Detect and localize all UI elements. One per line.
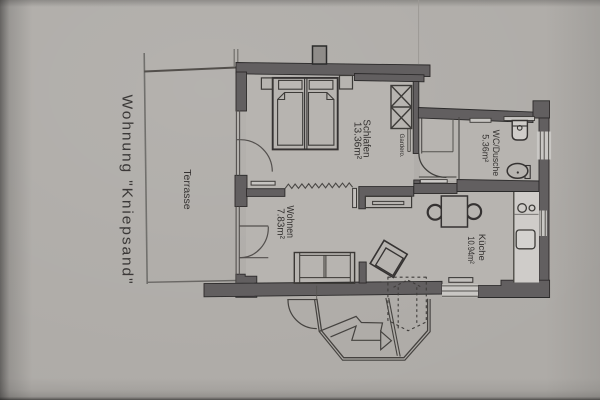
- svg-text:Wohnung "Kniepsand": Wohnung "Kniepsand": [119, 95, 136, 286]
- svg-text:Küche: Küche: [476, 234, 487, 261]
- svg-text:Terrasse: Terrasse: [181, 169, 192, 210]
- svg-text:7.83m²: 7.83m²: [275, 208, 286, 239]
- svg-text:WC/Dusche: WC/Dusche: [491, 130, 501, 176]
- svg-text:13.36m²: 13.36m²: [351, 122, 362, 160]
- svg-text:5.36m²: 5.36m²: [481, 134, 491, 162]
- svg-text:10.94m²: 10.94m²: [466, 236, 476, 263]
- svg-text:Gardero.: Gardero.: [398, 134, 405, 158]
